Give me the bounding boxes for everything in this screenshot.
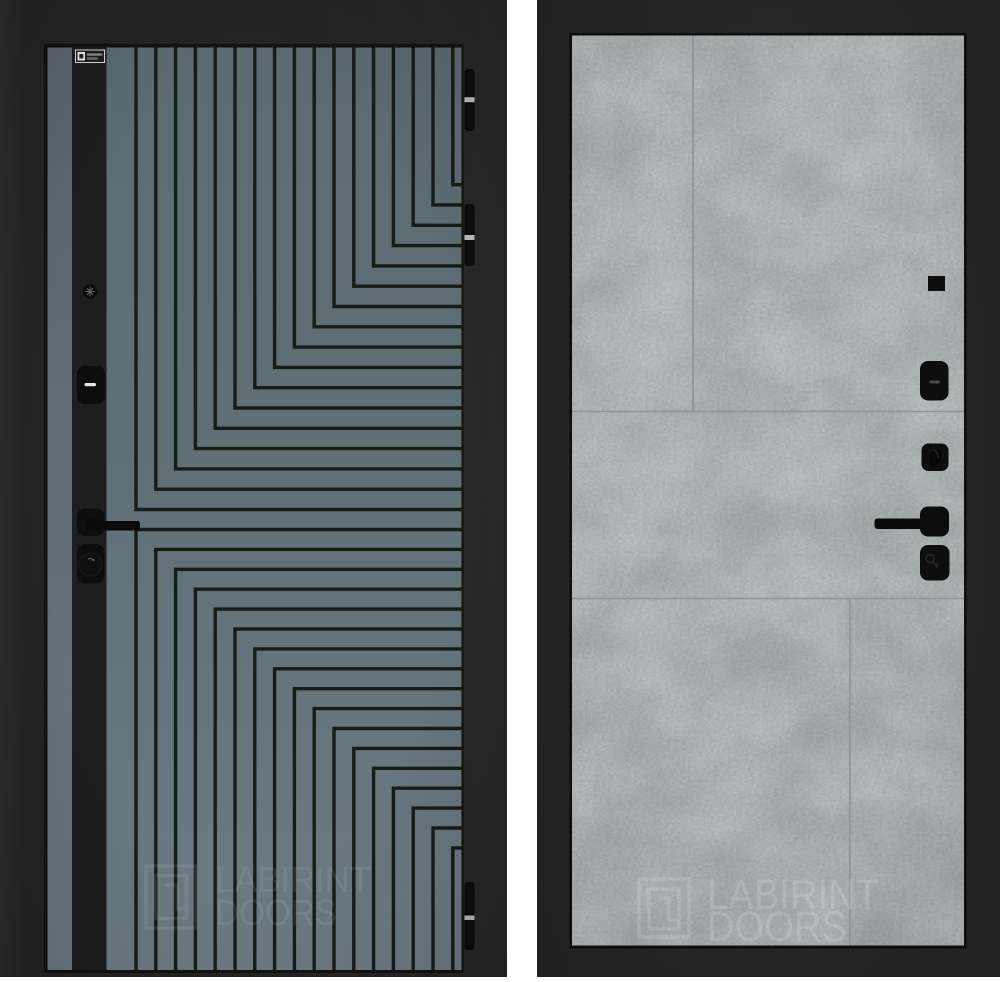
svg-text:DOORS: DOORS [215, 892, 337, 933]
svg-text:DOORS: DOORS [707, 903, 847, 951]
